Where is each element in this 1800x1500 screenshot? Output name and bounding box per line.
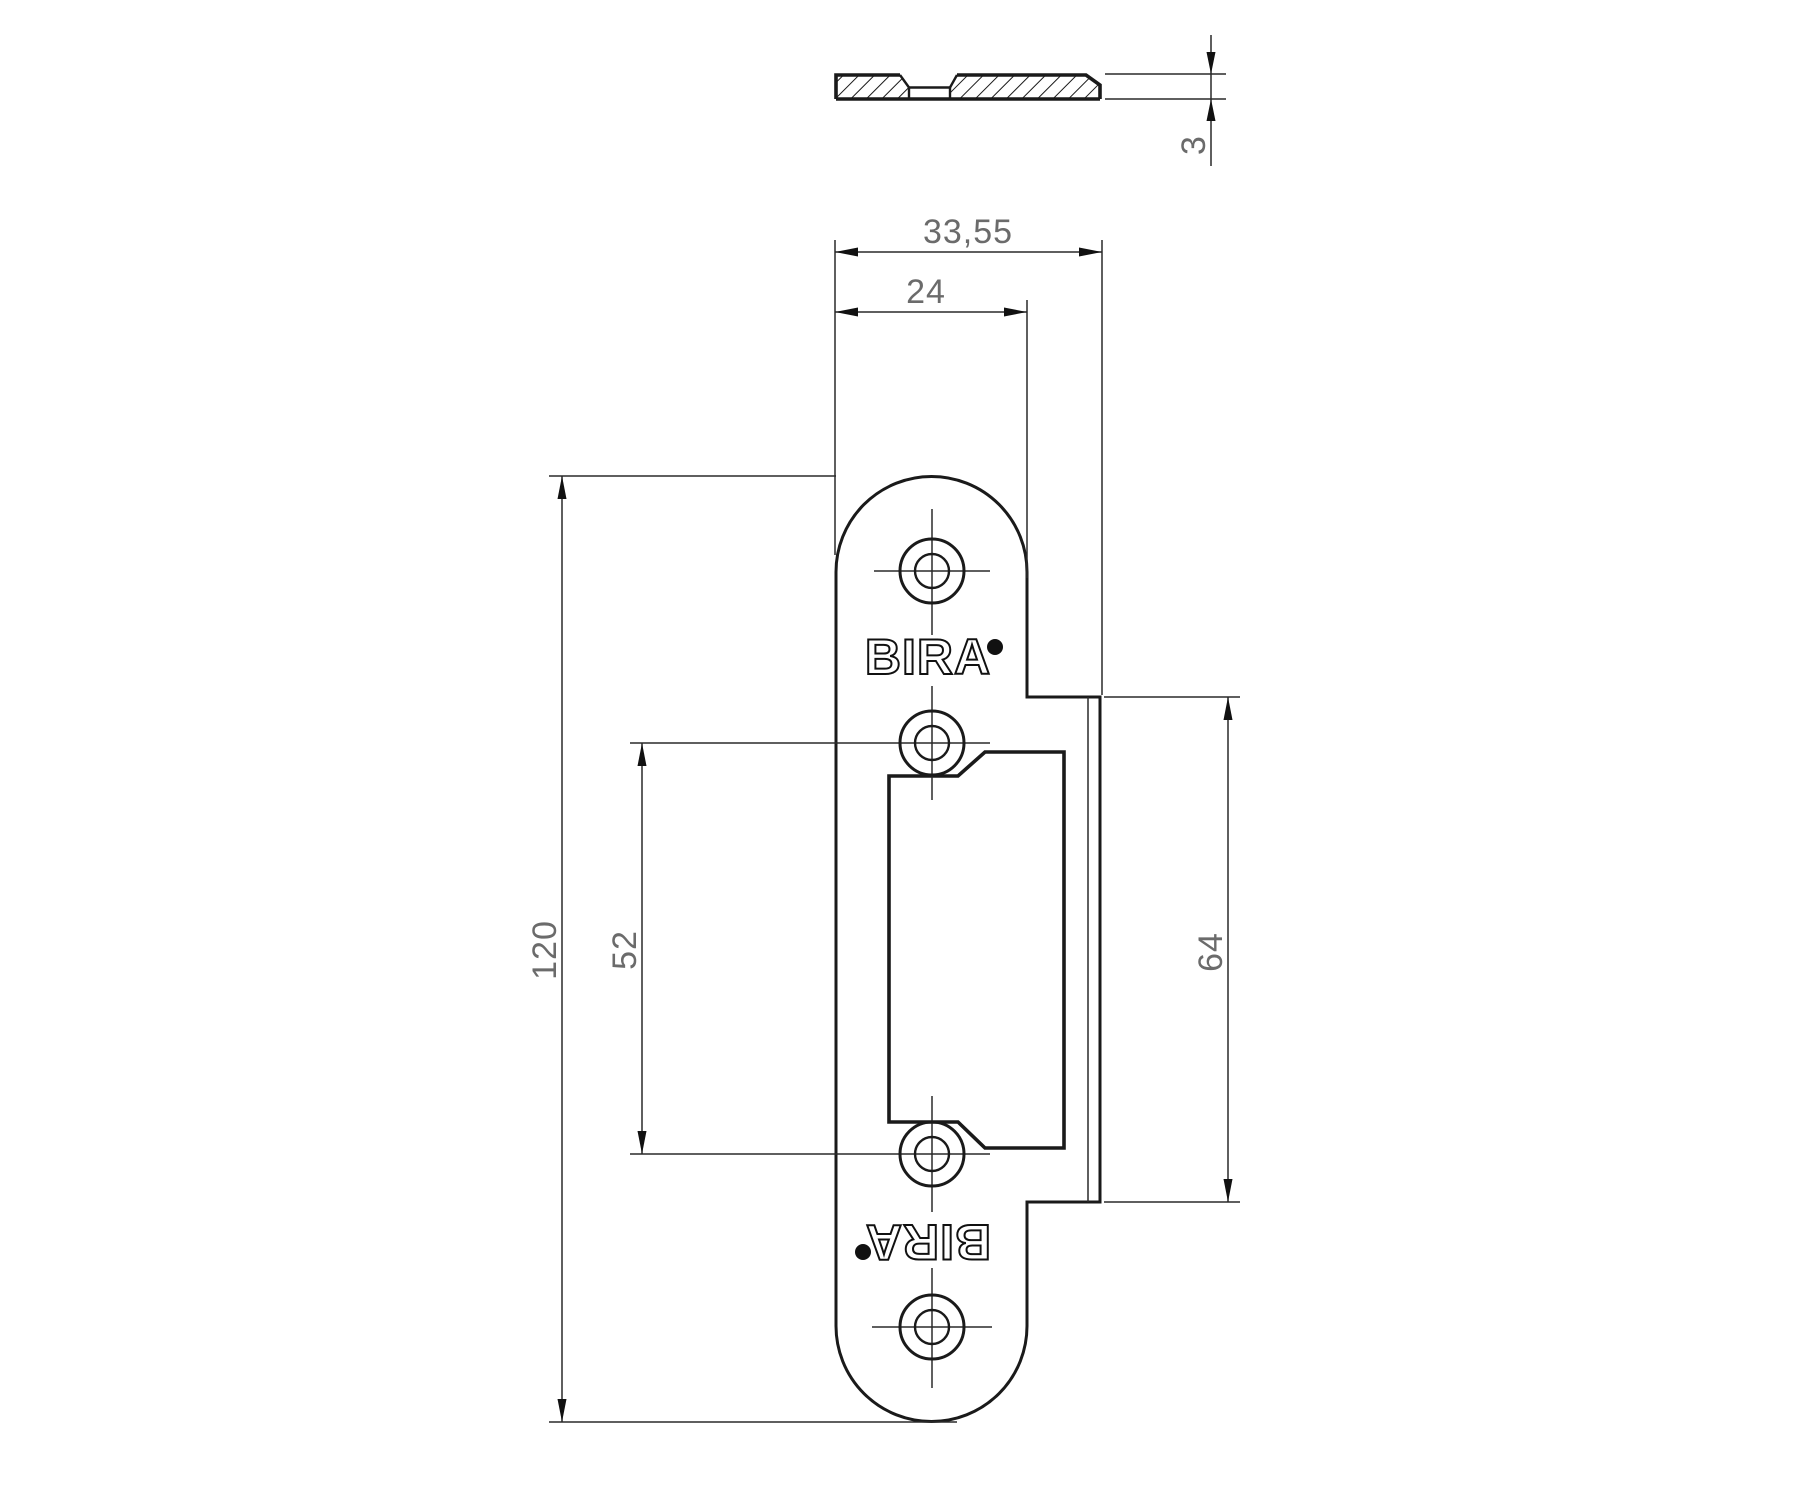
countersink-hole [900,75,957,99]
arrow-up [558,476,567,499]
arrow-right [1079,248,1102,257]
registered-mark-dot [987,639,1003,655]
dimension-text-thickness: 3 [1175,135,1213,155]
screw-hole-bottom [872,1268,992,1388]
dimension-text-lip-length: 64 [1192,932,1230,972]
dimension-overall-width: 33,55 [835,213,1102,695]
brand-text-inverted: BIRA [865,1214,991,1270]
arrow-up [1224,697,1233,720]
arrow-left [835,308,858,317]
dimension-body-height: 120 [526,476,957,1422]
dimension-body-width: 24 [835,273,1027,578]
section-view: 3 [836,35,1226,166]
arrow-down [638,1131,647,1154]
arrow-up [1207,99,1216,121]
arrow-right [1004,308,1027,317]
technical-drawing-page: 3 [0,0,1800,1500]
screw-hole-top [874,509,990,635]
section-hatch-fill [836,75,1100,99]
latch-cutout [889,752,1064,1148]
brand-text: BIRA [865,629,991,685]
arrow-left [835,248,858,257]
arrow-down [558,1399,567,1422]
dimension-text-overall-width: 33,55 [923,213,1013,251]
registered-mark-dot [855,1244,871,1260]
arrow-down [1224,1179,1233,1202]
dimension-text-hole-spacing: 52 [606,930,644,970]
brand-logo-top: BIRA [865,629,1003,685]
plate-outline [836,477,1100,1422]
screw-hole-lower-middle [630,1096,990,1212]
dimension-lip-length: 64 [1104,697,1240,1202]
screw-hole-upper-middle [630,686,990,800]
arrow-down [1207,52,1216,74]
dimension-thickness: 3 [1105,35,1226,166]
arrow-up [638,743,647,766]
brand-logo-bottom: BIRA [855,1214,991,1270]
front-view: BIRA BIRA 33,55 24 [526,213,1240,1422]
strike-plate-drawing: 3 [0,0,1800,1500]
dimension-text-body-width: 24 [906,273,946,311]
dimension-hole-spacing: 52 [606,743,647,1154]
dimension-text-body-height: 120 [526,920,564,980]
